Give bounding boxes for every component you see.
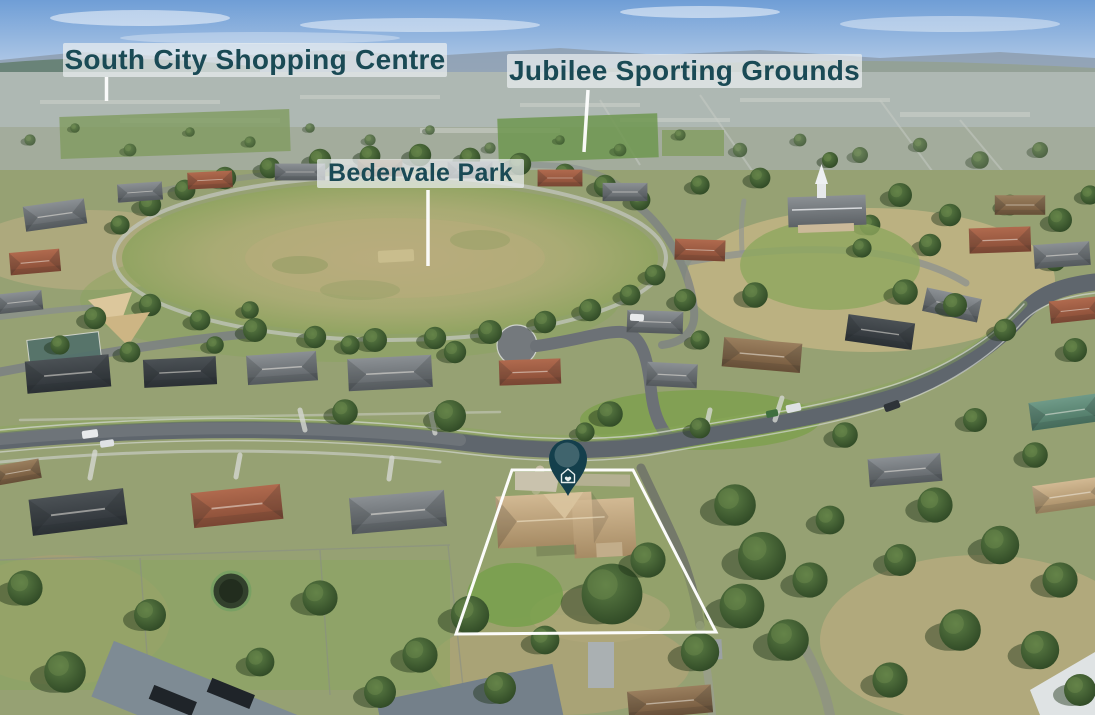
label-south-city-shopping-centre: South City Shopping Centre [63,43,447,77]
label-pointer-line-sporting [584,90,588,152]
label-bedervale-park: Bedervale Park [317,159,524,188]
annotation-overlay [0,0,1095,715]
label-jubilee-sporting-grounds: Jubilee Sporting Grounds [507,54,862,88]
property-boundary-outline [456,470,716,634]
location-pin [549,440,587,497]
pin-window [555,443,580,468]
aerial-photo: South City Shopping Centre Jubilee Sport… [0,0,1095,715]
